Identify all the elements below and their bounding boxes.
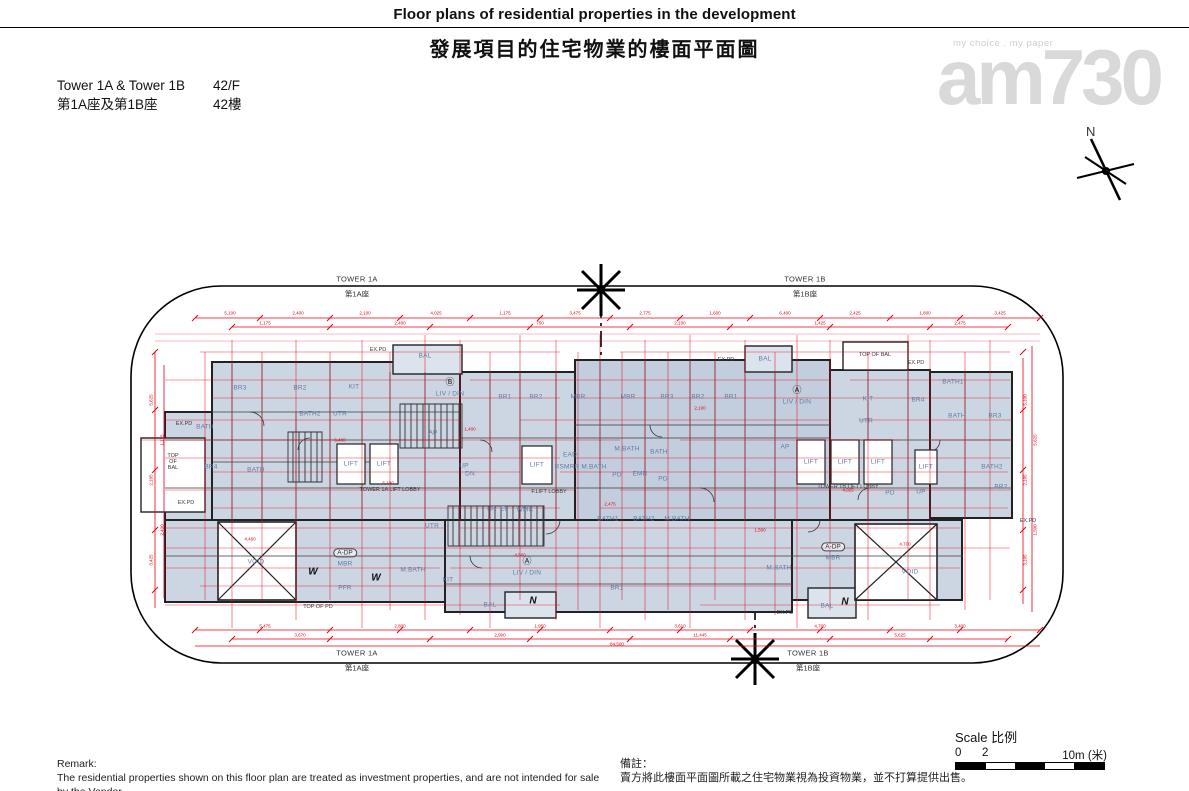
scale-tick-10m: 10m (米) xyxy=(1062,747,1107,763)
remark-en: Remark: The residential properties shown… xyxy=(57,757,612,791)
remark-en-body: The residential properties shown on this… xyxy=(57,771,612,791)
scale-caption: Scale 比例 xyxy=(955,727,1107,746)
floor-plan-drawing xyxy=(0,0,1189,791)
remark-zh-heading: 備註： xyxy=(620,757,1040,771)
remark-zh-body: 賣方將此樓面平面圖所載之住宅物業視為投資物業，並不打算提供出售。 xyxy=(620,771,1040,785)
floor-plan-page: Floor plans of residential properties in… xyxy=(0,0,1189,791)
survey-star-icon xyxy=(731,633,779,685)
dimension-chains-light xyxy=(155,334,1040,341)
remark-en-heading: Remark: xyxy=(57,757,612,771)
survey-star-icon xyxy=(577,264,625,316)
remark-zh: 備註： 賣方將此樓面平面圖所載之住宅物業視為投資物業，並不打算提供出售。 xyxy=(620,757,1040,785)
